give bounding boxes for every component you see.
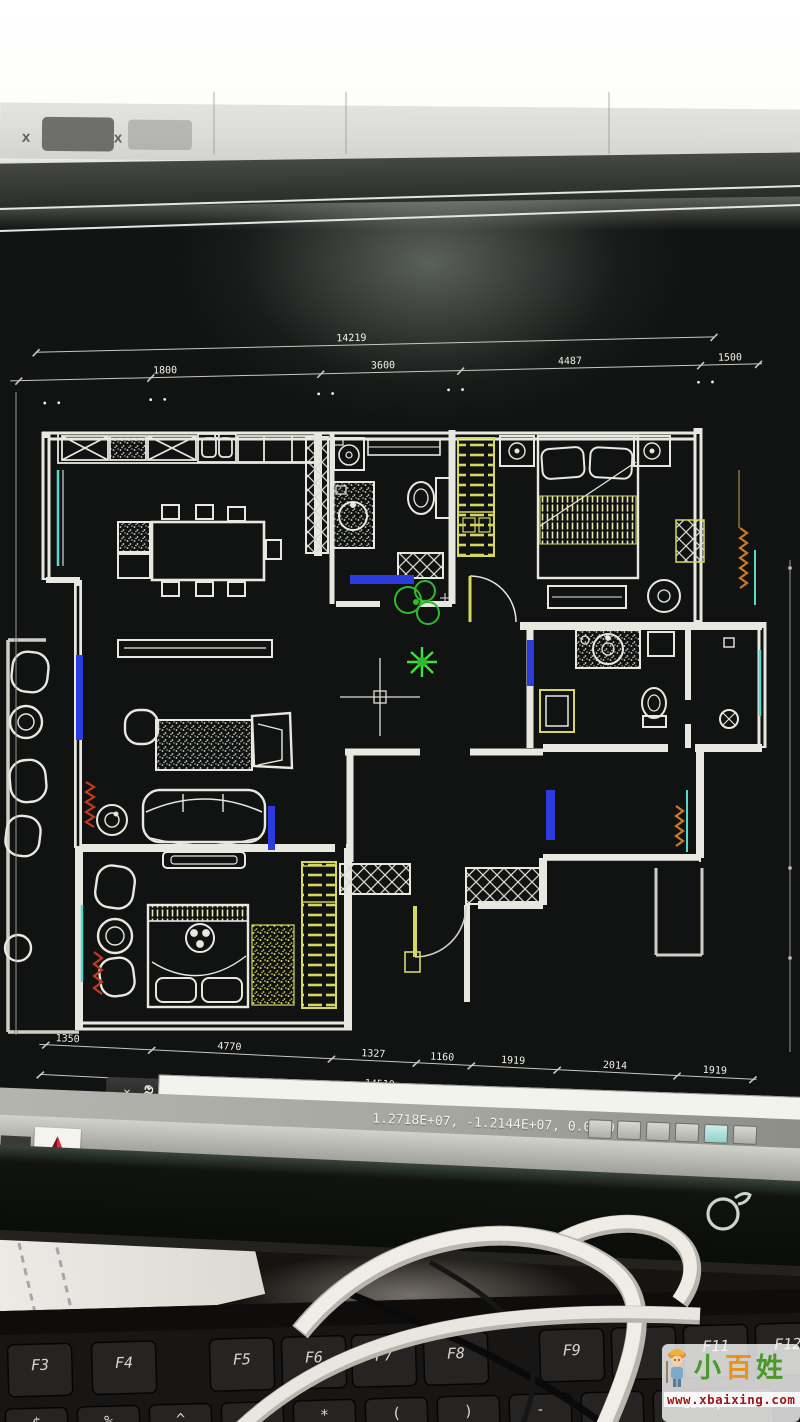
svg-text:): ) [464, 1402, 474, 1420]
brand-char: 姓 [756, 1355, 783, 1382]
mascot-icon [664, 1347, 690, 1389]
svg-text:F4: F4 [115, 1353, 134, 1371]
svg-text:$: $ [32, 1414, 42, 1422]
svg-text:*: * [320, 1406, 330, 1422]
svg-text:^: ^ [176, 1410, 186, 1422]
watermark-url: www.xbaixing.com [664, 1392, 800, 1407]
photo-of-monitor: x x [0, 0, 800, 1422]
watermark: 小 百 姓 www.xbaixing.com [662, 1344, 800, 1422]
svg-text:%: % [104, 1412, 114, 1422]
svg-text:F3: F3 [31, 1356, 50, 1374]
brand-char: 百 [725, 1355, 752, 1382]
svg-text:F9: F9 [563, 1341, 582, 1359]
brand-char: 小 [694, 1355, 721, 1382]
svg-text:F8: F8 [447, 1344, 466, 1362]
foreground-objects: F3 F4 F5 F6 F7 F8 F9 F11 F12 [0, 0, 800, 1422]
svg-text:-: - [536, 1400, 546, 1418]
monitor-power-button [708, 1194, 750, 1229]
svg-text:F5: F5 [233, 1350, 252, 1368]
svg-text:(: ( [392, 1404, 402, 1422]
